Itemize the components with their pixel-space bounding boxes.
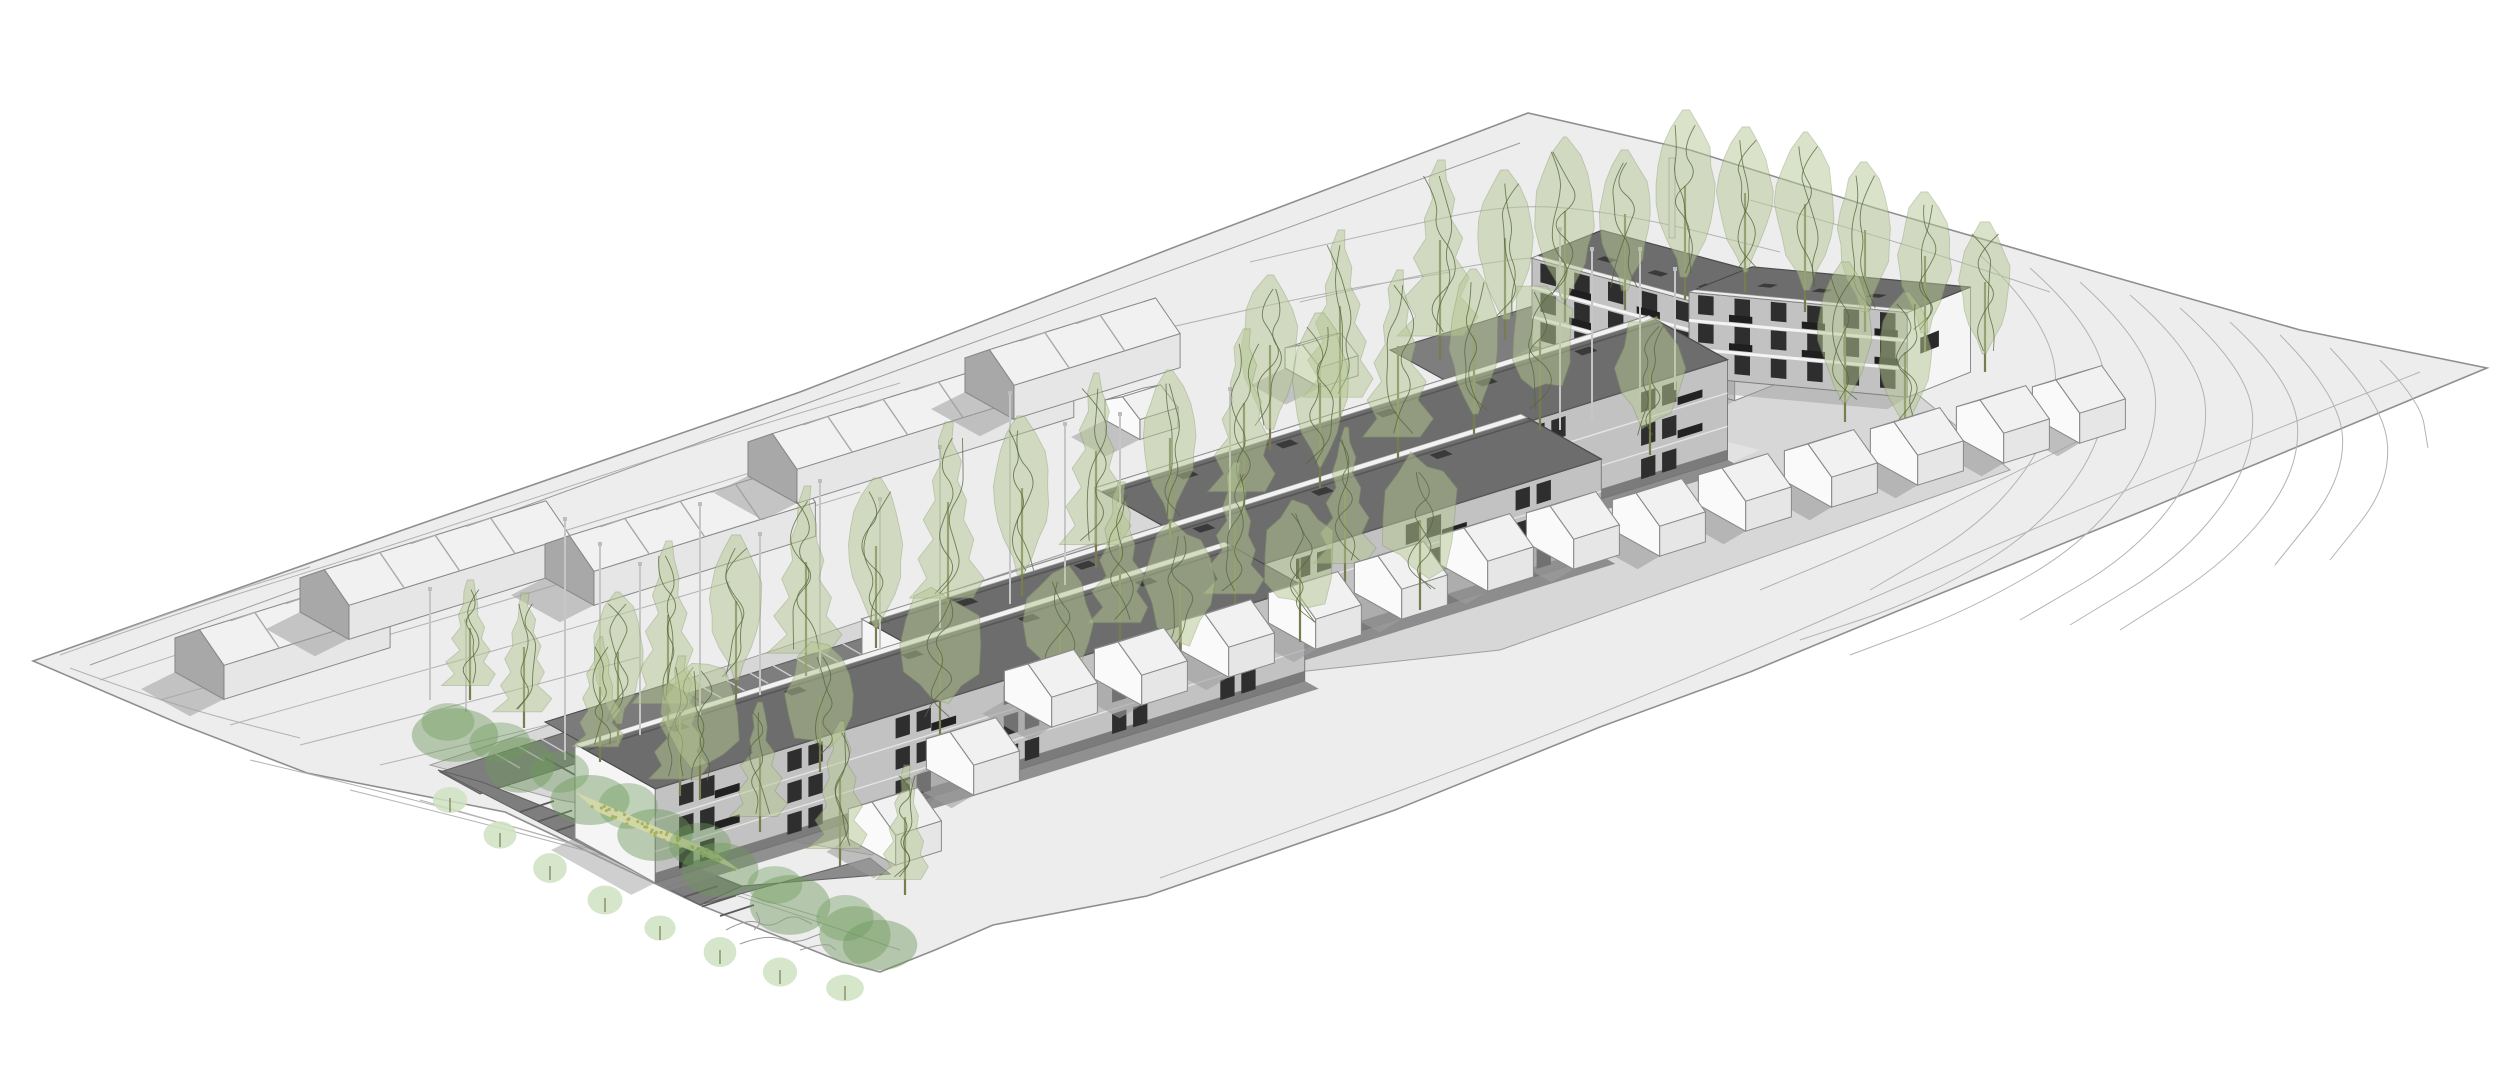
mast-cap bbox=[698, 502, 702, 506]
hedge-blob bbox=[843, 920, 918, 970]
mast-cap bbox=[598, 542, 602, 546]
path-dot bbox=[600, 806, 603, 809]
path-dot bbox=[603, 805, 606, 808]
mast-cap bbox=[1673, 267, 1677, 271]
path-dot bbox=[662, 838, 665, 841]
window bbox=[1807, 362, 1823, 382]
mast-cap bbox=[638, 562, 642, 566]
mast-cap bbox=[1590, 247, 1594, 251]
path-dot bbox=[626, 818, 629, 821]
path-dot bbox=[625, 822, 628, 825]
mast-cap bbox=[428, 587, 432, 591]
window bbox=[1771, 359, 1787, 380]
window bbox=[1771, 330, 1787, 350]
path-dot bbox=[605, 809, 608, 812]
path-dot bbox=[643, 825, 646, 828]
path-dot bbox=[651, 829, 654, 832]
mast-cap bbox=[818, 479, 822, 483]
hedge-blob bbox=[681, 843, 758, 897]
path-dot bbox=[665, 833, 668, 836]
mast-cap bbox=[563, 517, 567, 521]
window bbox=[1698, 323, 1714, 344]
path-dot bbox=[659, 831, 662, 834]
mast-cap bbox=[1118, 412, 1122, 416]
mast-cap bbox=[758, 532, 762, 536]
mast-cap bbox=[1063, 422, 1067, 426]
path-dot bbox=[608, 808, 611, 811]
path-dot bbox=[653, 832, 656, 835]
path-dot bbox=[623, 813, 626, 816]
axonometric-site-plan bbox=[0, 0, 2500, 1071]
path-dot bbox=[590, 805, 593, 808]
site-plan-rendering bbox=[0, 0, 2500, 1071]
mast-cap bbox=[1008, 391, 1012, 395]
path-dot bbox=[614, 808, 617, 811]
window bbox=[1698, 295, 1714, 315]
path-dot bbox=[636, 820, 639, 823]
path-dot bbox=[614, 816, 617, 819]
path-dot bbox=[646, 822, 649, 825]
path-dot bbox=[611, 816, 614, 819]
path-dot bbox=[641, 822, 644, 825]
window bbox=[1735, 355, 1751, 376]
window bbox=[1771, 302, 1787, 323]
